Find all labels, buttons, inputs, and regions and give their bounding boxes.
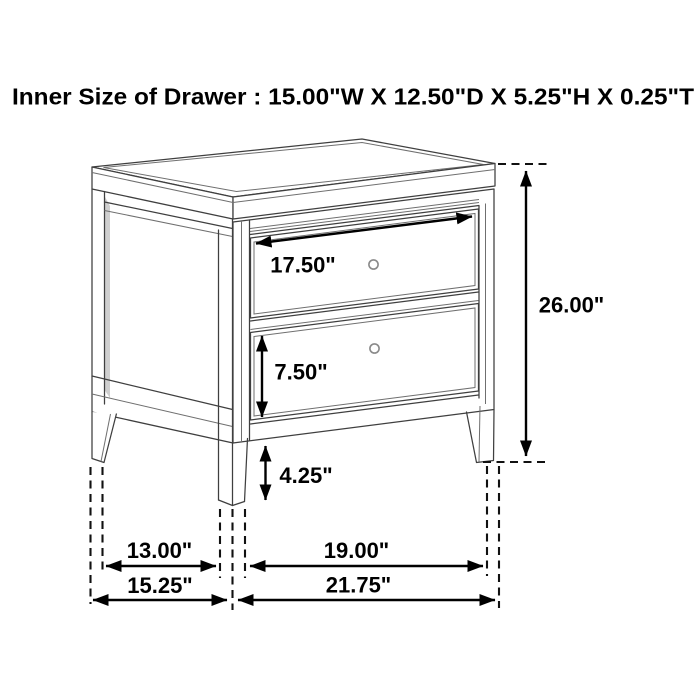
dimension-diagram-page: Inner Size of Drawer : 15.00"W X 12.50"D… xyxy=(0,0,700,700)
leg-front-left-bottom xyxy=(219,500,245,506)
leg-front-left-taper xyxy=(245,439,248,502)
drawer-2-knob xyxy=(370,344,379,353)
dim-depth-inner: 13.00" xyxy=(106,538,216,566)
nightstand-dimension-diagram: Inner Size of Drawer : 15.00"W X 12.50"D… xyxy=(0,0,700,700)
dim-overall-height: 26.00" xyxy=(526,171,604,456)
dim-label-depth-inner: 13.00" xyxy=(127,538,192,563)
dim-label-depth-overall: 15.25" xyxy=(127,573,192,598)
dim-label-width-inner: 19.00" xyxy=(324,538,389,563)
dim-depth-overall: 15.25" xyxy=(93,573,227,600)
dim-width-overall: 21.75" xyxy=(238,573,495,601)
dim-label-width-overall: 21.75" xyxy=(326,573,391,598)
dim-label-lower-drawer-height: 7.50" xyxy=(274,360,327,385)
page-title: Inner Size of Drawer : 15.00"W X 12.50"D… xyxy=(12,84,694,110)
side-panel-shadow xyxy=(105,196,111,398)
dim-label-leg-height: 4.25" xyxy=(279,463,332,488)
dim-label-overall-height: 26.00" xyxy=(539,293,604,318)
dim-width-inner: 19.00" xyxy=(250,538,483,566)
nightstand-drawing xyxy=(92,139,495,506)
side-bottom-rail-line-1 xyxy=(92,376,233,410)
leg-back-left xyxy=(92,412,117,463)
leg-front-right-inner-line xyxy=(479,406,480,462)
drawer-1-knob xyxy=(369,260,378,269)
dim-leg-height: 4.25" xyxy=(266,446,333,500)
dim-label-drawer-width: 17.50" xyxy=(270,253,335,278)
